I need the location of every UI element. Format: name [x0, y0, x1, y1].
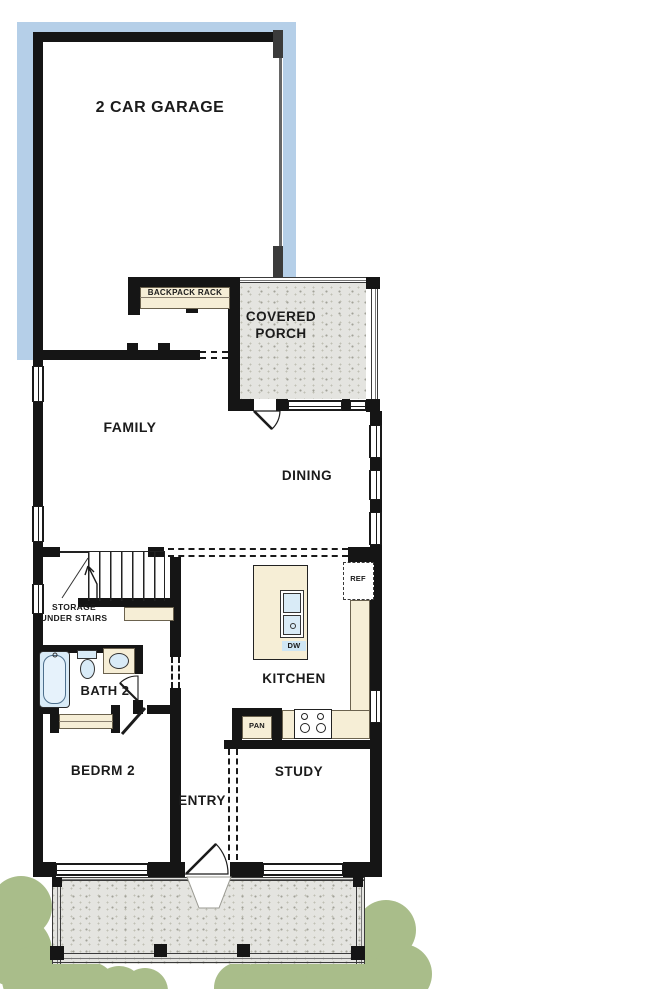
wall-segment	[33, 32, 283, 42]
ceiling-break-line	[168, 555, 348, 557]
cooktop-burner	[301, 713, 308, 720]
vanity-sink	[109, 653, 129, 669]
window	[369, 470, 382, 500]
room-label-study: STUDY	[249, 763, 349, 780]
wall-segment	[366, 277, 380, 289]
cased-opening	[236, 749, 238, 860]
wall-segment	[33, 862, 56, 877]
porch-post	[353, 877, 363, 887]
front-door-leaf	[186, 844, 216, 874]
wall-segment	[370, 411, 382, 425]
wall-segment	[127, 343, 138, 350]
room-label-family: FAMILY	[70, 419, 190, 437]
cooktop-burner	[317, 713, 324, 720]
cased-opening	[200, 351, 228, 353]
porch-railing	[52, 953, 365, 963]
ceiling-break-line	[168, 548, 348, 550]
window	[32, 366, 44, 402]
room-label-porch: COVERED PORCH	[231, 308, 331, 343]
wall-segment	[158, 343, 170, 350]
appliance-label-dw: DW	[282, 641, 306, 651]
kitchen-counter	[350, 600, 370, 723]
wall-segment	[128, 277, 140, 315]
porch-door-leaf	[254, 411, 272, 429]
wall-segment	[33, 542, 43, 584]
wall-segment	[147, 705, 181, 714]
wall-segment	[128, 277, 232, 287]
stair-storage-shelf	[124, 607, 174, 621]
window	[263, 863, 343, 876]
porch-post	[351, 946, 365, 960]
stair-rail-line	[60, 551, 88, 553]
garage-door-jamb	[273, 30, 283, 58]
wall-segment	[170, 688, 181, 865]
room-label-bedroom2: BEDRM 2	[53, 762, 153, 779]
window	[369, 690, 382, 723]
window	[32, 506, 44, 542]
porch-door-swing	[254, 411, 280, 429]
wall-segment	[33, 714, 43, 862]
window	[369, 512, 382, 545]
floor-plan: 2 CAR GARAGE BACKPACK RACK COVERED PORCH…	[0, 0, 662, 989]
kitchen-sink-basin	[283, 593, 301, 613]
porch-post	[237, 944, 250, 957]
wall-segment	[276, 399, 288, 411]
porch-screen	[240, 277, 366, 283]
garage-door	[279, 58, 282, 248]
stair-rail-diagonal	[62, 558, 88, 598]
porch-post	[154, 944, 167, 957]
room-label-entry: ENTRY	[171, 792, 233, 809]
room-label-dining: DINING	[247, 467, 367, 484]
window	[56, 863, 148, 876]
stairs	[88, 551, 165, 601]
porch-post	[50, 946, 64, 960]
wall-segment	[33, 402, 43, 506]
porch-screen	[371, 289, 378, 399]
cooktop	[294, 709, 332, 739]
wall-segment	[244, 740, 372, 749]
porch-post	[52, 877, 62, 887]
wall-segment	[33, 32, 43, 360]
plan-linework	[0, 0, 662, 989]
cased-opening	[178, 657, 180, 688]
cased-opening	[200, 357, 228, 359]
driveway-apron	[17, 22, 33, 360]
room-label-kitchen: KITCHEN	[234, 670, 354, 687]
room-label-backpack: BACKPACK RACK	[147, 288, 223, 298]
wall-segment	[370, 500, 382, 512]
window	[369, 425, 382, 458]
wall-segment	[33, 350, 200, 360]
driveway-apron	[283, 22, 296, 278]
toilet-tank	[77, 650, 97, 659]
wall-segment	[343, 862, 382, 877]
wall-segment	[342, 399, 350, 411]
appliance-label-ref: REF	[344, 574, 372, 584]
sink-drain	[290, 623, 296, 629]
room-label-storage: STORAGE UNDER STAIRS	[38, 602, 110, 624]
wall-segment	[370, 458, 382, 470]
wall-segment	[228, 399, 254, 411]
garage-door-jamb	[273, 246, 283, 278]
window	[288, 400, 342, 411]
porch-railing	[52, 877, 365, 881]
room-label-garage: 2 CAR GARAGE	[50, 98, 270, 118]
room-label-bath2: BATH 2	[65, 683, 145, 700]
closet-shelf-line	[59, 721, 113, 722]
front-porch-floor	[52, 877, 365, 964]
wall-segment	[148, 862, 185, 877]
wall-segment	[348, 547, 382, 563]
wall-segment	[50, 705, 59, 733]
wall-segment	[133, 700, 143, 714]
front-door-swing	[186, 844, 228, 874]
window	[350, 400, 366, 411]
cooktop-burner	[316, 723, 326, 733]
cased-opening	[171, 657, 173, 688]
cooktop-burner	[300, 723, 310, 733]
wall-segment	[272, 708, 282, 748]
appliance-label-pan: PAN	[243, 721, 271, 731]
bush	[372, 944, 432, 989]
toilet-bowl	[80, 659, 95, 679]
wall-segment	[230, 862, 263, 877]
